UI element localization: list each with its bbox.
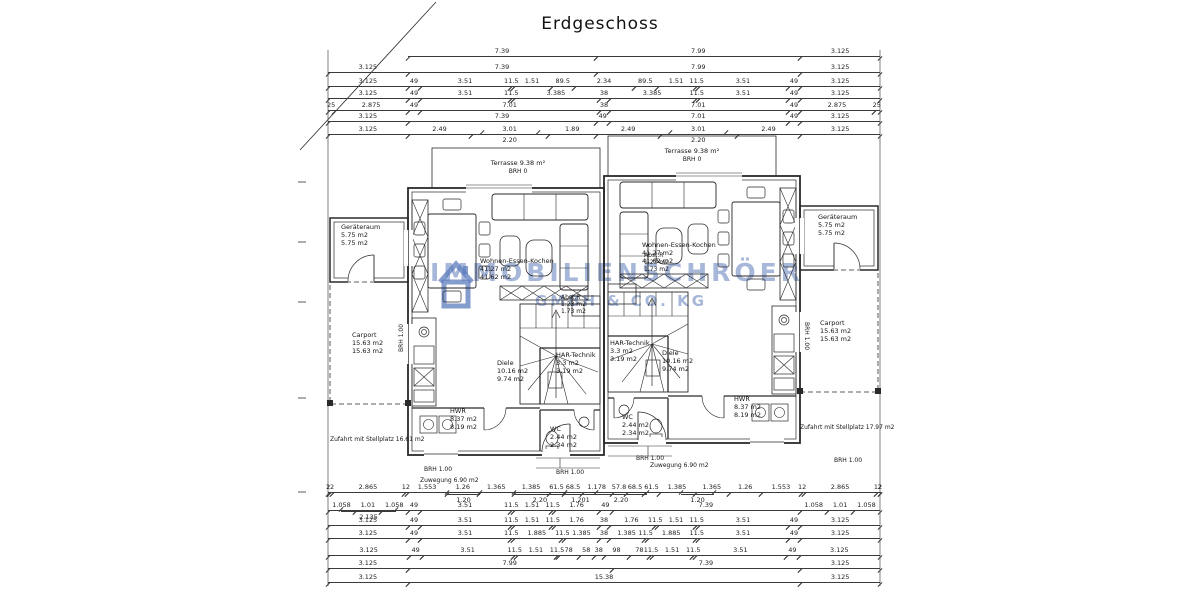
dim-label: 15.38 bbox=[595, 574, 614, 581]
kitchen-sink-inner bbox=[422, 330, 427, 335]
dim-segment: 38 bbox=[594, 547, 604, 556]
dim-segment: 1.01 bbox=[827, 502, 853, 511]
dimension-row: 1.0581.011.058493.5111.51.5111.51.76497.… bbox=[328, 502, 880, 511]
dim-segment: 49 bbox=[788, 517, 801, 526]
dim-label: 1.385 bbox=[572, 530, 591, 537]
geraeteraum-door-gap bbox=[348, 277, 374, 285]
room-label-wohnen-left: Wohnen-Essen-Kochen 41.27 m2 41.62 m2 bbox=[480, 258, 554, 281]
room-label-carport-left: Carport 15.63 m2 15.63 m2 bbox=[352, 332, 383, 355]
dim-segment: 1.885 bbox=[647, 530, 695, 539]
dim-segment: 3.125 bbox=[800, 90, 880, 99]
dim-segment: 49 bbox=[408, 90, 421, 99]
dim-segment: 1.76 bbox=[554, 517, 599, 526]
dim-segment: 49 bbox=[409, 547, 422, 556]
dim-label: 1.385 bbox=[668, 484, 687, 491]
dim-spacer bbox=[726, 134, 880, 143]
dim-segment: 3.125 bbox=[328, 90, 408, 99]
dim-segment: 1.365 bbox=[695, 484, 730, 493]
dim-label: 3.51 bbox=[460, 547, 474, 554]
brh-label-rotated-left: BRH 1.00 bbox=[398, 324, 405, 352]
chair bbox=[479, 244, 490, 257]
kitchen-hob bbox=[414, 346, 434, 364]
room-label-wc-left: WC 2.44 m2 2.34 m2 bbox=[550, 426, 577, 449]
dim-label: 3.125 bbox=[831, 530, 850, 537]
dim-segment: 7.01 bbox=[609, 113, 788, 122]
dim-segment: 7.01 bbox=[609, 102, 788, 111]
dim-label: 1.76 bbox=[569, 517, 583, 524]
dim-label: 3.51 bbox=[736, 530, 750, 537]
dim-segment: 1.553 bbox=[407, 484, 446, 493]
dim-segment: 1.01 bbox=[355, 502, 381, 511]
dim-segment: 1.058 bbox=[853, 502, 880, 511]
dim-segment: 3.125 bbox=[328, 530, 408, 539]
dim-label: 3.125 bbox=[831, 48, 850, 55]
sofa bbox=[492, 194, 588, 220]
dim-segment: 49 bbox=[788, 102, 801, 111]
dim-segment: 1.058 bbox=[800, 502, 827, 511]
dimension-row: 3.1257.397.993.125 bbox=[328, 64, 880, 73]
dim-label: 49 bbox=[410, 78, 418, 85]
dim-label: 49 bbox=[598, 113, 606, 120]
carport-post bbox=[327, 400, 333, 406]
room-label-diele-left: Diele 10.16 m2 9.74 m2 bbox=[497, 360, 528, 383]
room-label-geraeteraum-right: Geräteraum 5.75 m2 5.75 m2 bbox=[818, 214, 857, 237]
dim-segment: 2.34 bbox=[574, 78, 634, 87]
dim-label: 1.058 bbox=[385, 502, 404, 509]
dim-label: 7.39 bbox=[699, 560, 713, 567]
dim-label: 3.125 bbox=[359, 90, 378, 97]
entrance-door-gap bbox=[542, 449, 570, 458]
dim-label: 3.125 bbox=[359, 78, 378, 85]
dim-label: 61.5 bbox=[644, 484, 658, 491]
dim-segment: 38 bbox=[599, 90, 609, 99]
dim-segment: 3.385 bbox=[513, 90, 599, 99]
dim-segment: 3.125 bbox=[800, 530, 880, 539]
dim-segment: 2.875 bbox=[334, 102, 407, 111]
dim-label: 7.01 bbox=[691, 113, 705, 120]
dim-segment: 78 bbox=[558, 547, 578, 556]
dim-label: 2.49 bbox=[761, 126, 775, 133]
dim-segment: 1.76 bbox=[554, 502, 599, 511]
dim-label: 49 bbox=[790, 102, 798, 109]
dim-label: 1.89 bbox=[565, 126, 579, 133]
room-label-abstr-left: Abst.R 1.23 m2 1.73 m2 bbox=[561, 294, 586, 316]
dim-label: 1.553 bbox=[418, 484, 437, 491]
dim-label: 1.365 bbox=[703, 484, 722, 491]
dim-segment: 49 bbox=[786, 547, 799, 556]
room-label-geraeteraum-left: Geräteraum 5.75 m2 5.75 m2 bbox=[341, 224, 380, 247]
dim-label: 68.5 bbox=[566, 484, 580, 491]
dim-label: 1.51 bbox=[669, 517, 683, 524]
dim-label: 3.125 bbox=[359, 64, 378, 71]
room-label-carport-right: Carport 15.63 m2 15.63 m2 bbox=[820, 320, 851, 343]
dim-segment: 2.875 bbox=[800, 102, 873, 111]
zufahrt-label-left: Zufahrt mit Stellplatz 16.61 m2 bbox=[330, 436, 425, 443]
terrace-door-gap bbox=[466, 184, 532, 193]
dim-segment: 89.5 bbox=[634, 78, 657, 87]
dim-segment: 3.125 bbox=[800, 560, 880, 569]
dim-label: 49 bbox=[410, 530, 418, 537]
dim-label: 49 bbox=[410, 90, 418, 97]
dim-label: 3.51 bbox=[736, 517, 750, 524]
dim-label: 3.51 bbox=[458, 530, 472, 537]
room-label-wc-right: WC 2.44 m2 2.34 m2 bbox=[622, 414, 649, 437]
dim-label: 1.553 bbox=[772, 484, 791, 491]
dim-label: 1.01 bbox=[833, 502, 847, 509]
dim-label: 3.125 bbox=[831, 560, 850, 567]
dim-segment: 3.125 bbox=[328, 560, 408, 569]
dim-segment: 7.99 bbox=[596, 64, 800, 73]
dim-label: 78 bbox=[635, 547, 643, 554]
dim-label: 1.885 bbox=[662, 530, 681, 537]
dim-label: 3.51 bbox=[458, 517, 472, 524]
dim-segment: 3.51 bbox=[698, 530, 788, 539]
dim-segment: 3.51 bbox=[422, 547, 513, 556]
dim-segment: 38 bbox=[599, 517, 609, 526]
dim-label: 38 bbox=[600, 530, 608, 537]
dim-segment: 1.51 bbox=[513, 78, 552, 87]
dim-segment: 49 bbox=[408, 502, 421, 511]
dim-label: 49 bbox=[790, 113, 798, 120]
dim-label: 1.76 bbox=[569, 502, 583, 509]
dim-label: 2.49 bbox=[621, 126, 635, 133]
dim-segment: 38 bbox=[599, 530, 609, 539]
dim-label: 1.385 bbox=[617, 530, 636, 537]
dim-label: 3.125 bbox=[359, 547, 378, 554]
dim-label: 7.01 bbox=[691, 102, 705, 109]
dim-label: 3.125 bbox=[359, 574, 378, 581]
dim-segment: 57.8 bbox=[612, 484, 627, 493]
dim-segment: 25 bbox=[874, 102, 880, 111]
chair bbox=[443, 199, 461, 210]
dining-table bbox=[428, 214, 476, 288]
dimension-row: 3.12515.383.125 bbox=[328, 574, 880, 583]
dim-segment: 2.20 bbox=[482, 134, 538, 143]
dim-segment: 3.51 bbox=[420, 530, 510, 539]
washer bbox=[420, 416, 437, 433]
room-label-terrasse-left: Terrasse 9.38 m² BRH 0 bbox=[450, 160, 586, 175]
washer-drum bbox=[424, 420, 434, 430]
dim-segment: 49 bbox=[408, 78, 421, 87]
dim-label: 38 bbox=[600, 102, 608, 109]
dim-segment: 3.125 bbox=[328, 574, 408, 583]
dim-label: 1.26 bbox=[456, 484, 470, 491]
dim-label: 89.5 bbox=[638, 78, 652, 85]
dim-segment: 49 bbox=[788, 90, 801, 99]
room-label-hwr-left: HWR 8.37 m2 8.19 m2 bbox=[450, 408, 477, 431]
inner-wall-line bbox=[412, 192, 600, 451]
sofa-corner bbox=[560, 224, 588, 290]
dim-segment: 3.125 bbox=[800, 113, 880, 122]
dim-label: 7.99 bbox=[502, 560, 516, 567]
dim-segment: 1.385 bbox=[514, 484, 549, 493]
dim-label: 2.49 bbox=[432, 126, 446, 133]
dim-label: 25 bbox=[873, 102, 881, 109]
dim-spacer bbox=[328, 134, 482, 143]
dim-label: 3.125 bbox=[831, 113, 850, 120]
dim-segment: 3.125 bbox=[800, 64, 880, 73]
dim-label: 3.125 bbox=[359, 530, 378, 537]
dimension-row: 2.202.20 bbox=[328, 134, 880, 143]
dim-label: 7.39 bbox=[699, 502, 713, 509]
dim-segment: 3.385 bbox=[609, 90, 695, 99]
kitchen-oven-hatch bbox=[414, 368, 434, 386]
dim-segment: 98 bbox=[604, 547, 629, 556]
dim-segment: 1.385 bbox=[564, 530, 599, 539]
dim-label: 1.26 bbox=[738, 484, 752, 491]
dimension-row: 3.125493.5111.51.5111.51.76381.7611.51.5… bbox=[328, 517, 880, 526]
dim-segment: 3.125 bbox=[800, 48, 880, 57]
dim-label: 57.8 bbox=[612, 484, 626, 491]
dim-label: 58 bbox=[582, 547, 590, 554]
dim-label: 1.51 bbox=[529, 547, 543, 554]
dim-segment: 49 bbox=[788, 113, 801, 122]
brh-label-rotated-right: BRH 1.00 bbox=[803, 322, 810, 350]
dim-segment: 7.39 bbox=[408, 113, 597, 122]
dim-segment: 38 bbox=[599, 102, 609, 111]
dim-label: 3.51 bbox=[736, 90, 750, 97]
dim-segment: 49 bbox=[408, 102, 421, 111]
dim-label: 78 bbox=[564, 547, 572, 554]
dim-segment: 7.39 bbox=[612, 502, 801, 511]
chair bbox=[414, 266, 425, 279]
dim-segment: 68.5 bbox=[564, 484, 581, 493]
dim-segment: 1.385 bbox=[659, 484, 694, 493]
dim-label: 1.385 bbox=[522, 484, 541, 491]
dim-label: 3.51 bbox=[733, 547, 747, 554]
dim-label: 49 bbox=[790, 530, 798, 537]
dim-label: 7.39 bbox=[495, 48, 509, 55]
dim-label: 3.01 bbox=[502, 126, 516, 133]
dimension-row: 3.125493.5111.53.385383.38511.53.51493.1… bbox=[328, 90, 880, 99]
dim-label: 3.51 bbox=[736, 78, 750, 85]
dim-segment: 3.51 bbox=[698, 78, 788, 87]
floorplan-page: Erdgeschoss IMMOBILIEN SCHRÖER GMBH & CO… bbox=[0, 0, 1200, 600]
brh-label: BRH 1.00 bbox=[834, 457, 862, 464]
dim-label: 2.20 bbox=[691, 137, 705, 144]
left-margin-ticks bbox=[298, 182, 306, 492]
entrance-steps bbox=[536, 458, 600, 468]
room-label-abstr-right: Abst.R 1.23 m2 1.73 m2 bbox=[644, 252, 669, 274]
dim-segment: 49 bbox=[408, 530, 421, 539]
dim-label: 1.51 bbox=[525, 502, 539, 509]
dim-label: 1.058 bbox=[804, 502, 823, 509]
dim-label: 3.125 bbox=[831, 90, 850, 97]
dim-label: 38 bbox=[600, 90, 608, 97]
window-gap bbox=[424, 449, 458, 458]
dimension-row: 3.1257.997.393.125 bbox=[328, 560, 880, 569]
dim-segment: 15.38 bbox=[408, 574, 801, 583]
dim-label: 49 bbox=[601, 502, 609, 509]
dimension-row: 3.125493.5111.51.88511.51.385381.38511.5… bbox=[328, 530, 880, 539]
dim-label: 49 bbox=[790, 78, 798, 85]
dimension-row: 7.397.993.125 bbox=[328, 48, 880, 57]
wc-sink bbox=[579, 417, 589, 427]
kitchen-counter bbox=[412, 318, 436, 406]
dim-label: 3.125 bbox=[831, 517, 850, 524]
dim-segment: 7.01 bbox=[420, 102, 599, 111]
dim-segment: 49 bbox=[596, 113, 609, 122]
dim-label: 3.385 bbox=[643, 90, 662, 97]
dim-segment: 3.125 bbox=[328, 517, 408, 526]
dim-segment: 1.26 bbox=[729, 484, 761, 493]
dim-segment: 49 bbox=[599, 502, 612, 511]
dim-segment: 49 bbox=[788, 78, 801, 87]
dim-label: 1.51 bbox=[525, 78, 539, 85]
room-label-terrasse-right: Terrasse 9.38 m² BRH 0 bbox=[624, 148, 760, 163]
brh-label: BRH 1.00 bbox=[424, 466, 452, 473]
dim-segment: 2.20 bbox=[670, 134, 726, 143]
dim-segment: 3.125 bbox=[328, 64, 408, 73]
dim-label: 3.125 bbox=[830, 547, 849, 554]
dim-label: 2.20 bbox=[502, 137, 516, 144]
brh-label: BRH 1.00 bbox=[556, 469, 584, 476]
dim-label: 1.058 bbox=[857, 502, 876, 509]
dim-segment: 7.39 bbox=[408, 64, 597, 73]
dim-label: 1.51 bbox=[665, 547, 679, 554]
dim-segment: 3.51 bbox=[695, 547, 786, 556]
dim-label: 1.01 bbox=[361, 502, 375, 509]
dim-label: 1.51 bbox=[525, 517, 539, 524]
dim-spacer bbox=[538, 134, 670, 143]
dimension-row: 3.125493.5111.51.5111.5785838987811.51.5… bbox=[328, 547, 880, 556]
carport-post bbox=[405, 400, 411, 406]
room-label-har-right: HAR-Technik 3.3 m2 3.19 m2 bbox=[610, 340, 650, 363]
dim-label: 38 bbox=[600, 517, 608, 524]
dim-segment: 3.125 bbox=[800, 574, 880, 583]
kitchen-sink bbox=[419, 327, 429, 337]
dim-segment: 58 bbox=[579, 547, 594, 556]
dim-label: 49 bbox=[410, 502, 418, 509]
dim-label: 3.125 bbox=[359, 113, 378, 120]
dim-segment: 1.553 bbox=[761, 484, 800, 493]
dim-segment: 49 bbox=[408, 517, 421, 526]
dim-segment: 2.865 bbox=[804, 484, 877, 493]
dim-label: 3.125 bbox=[831, 574, 850, 581]
dim-label: 68.5 bbox=[628, 484, 642, 491]
dim-label: 61.5 bbox=[549, 484, 563, 491]
room-label-hwr-right: HWR 8.37 m2 8.19 m2 bbox=[734, 396, 761, 419]
dim-segment: 7.99 bbox=[596, 48, 800, 57]
dim-segment: 3.51 bbox=[420, 90, 510, 99]
brh-label: BRH 1.00 bbox=[636, 455, 664, 462]
dim-label: 3.51 bbox=[458, 90, 472, 97]
dim-label: 3.125 bbox=[359, 517, 378, 524]
dimension-row: 2122.865121.5531.261.3651.38561.568.51.1… bbox=[328, 484, 880, 493]
dim-label: 89.5 bbox=[555, 78, 569, 85]
dim-label: 98 bbox=[612, 547, 620, 554]
dim-label: 2 bbox=[878, 484, 882, 491]
dim-label: 7.39 bbox=[495, 64, 509, 71]
dim-label: 3.385 bbox=[547, 90, 566, 97]
dim-label: 3.51 bbox=[458, 78, 472, 85]
dim-segment: 3.125 bbox=[328, 547, 409, 556]
dim-segment: 3.125 bbox=[800, 517, 880, 526]
dim-segment: 1.26 bbox=[447, 484, 479, 493]
dim-label: 3.51 bbox=[458, 502, 472, 509]
dim-label: 7.39 bbox=[495, 113, 509, 120]
dim-label: 49 bbox=[790, 90, 798, 97]
chair bbox=[443, 291, 461, 302]
chair bbox=[479, 222, 490, 235]
dim-segment: 2 bbox=[880, 484, 881, 493]
dim-label: 1.76 bbox=[624, 517, 638, 524]
dim-segment: 3.51 bbox=[698, 517, 788, 526]
dim-label: 7.01 bbox=[502, 102, 516, 109]
room-label-diele-right: Diele 10.16 m2 9.74 m2 bbox=[662, 350, 693, 373]
dimension-row: 3.125493.5111.51.5189.52.3489.51.5111.53… bbox=[328, 78, 880, 87]
dim-label: 1.885 bbox=[528, 530, 547, 537]
dim-segment: 7.99 bbox=[408, 560, 612, 569]
dim-label: 38 bbox=[595, 547, 603, 554]
dim-label: 2.865 bbox=[831, 484, 850, 491]
dim-label: 49 bbox=[788, 547, 796, 554]
dim-segment: 3.125 bbox=[799, 547, 880, 556]
dim-label: 1.365 bbox=[487, 484, 506, 491]
dim-segment: 3.125 bbox=[328, 78, 408, 87]
dim-label: 49 bbox=[790, 517, 798, 524]
dim-segment: 3.125 bbox=[328, 113, 408, 122]
zufahrt-label-right: Zufahrt mit Stellplatz 17.97 m2 bbox=[800, 424, 895, 431]
hwr-door-arc bbox=[484, 408, 506, 430]
dim-label: 2.875 bbox=[362, 102, 381, 109]
dim-segment: 2.865 bbox=[332, 484, 405, 493]
dim-segment: 68.5 bbox=[626, 484, 643, 493]
dimension-row: 3.1257.39497.01493.125 bbox=[328, 113, 880, 122]
room-label-har-left: HAR-Technik 3.3 m2 3.19 m2 bbox=[556, 352, 596, 375]
dim-spacer bbox=[328, 48, 408, 57]
dim-label: 49 bbox=[411, 547, 419, 554]
dim-label: 7.99 bbox=[691, 48, 705, 55]
dim-label: 1.51 bbox=[669, 78, 683, 85]
dim-label: 3.125 bbox=[831, 78, 850, 85]
dim-label: 2.865 bbox=[359, 484, 378, 491]
dim-segment: 3.51 bbox=[420, 502, 510, 511]
dim-label: 3.125 bbox=[359, 126, 378, 133]
dim-segment: 7.39 bbox=[408, 48, 597, 57]
dim-segment: 3.51 bbox=[698, 90, 788, 99]
dim-segment: 3.51 bbox=[420, 78, 510, 87]
dim-label: 3.125 bbox=[831, 64, 850, 71]
zuwegung-label-right: Zuwegung 6.90 m2 bbox=[650, 462, 709, 469]
dim-segment: 7.39 bbox=[612, 560, 801, 569]
dim-label: 3.125 bbox=[831, 126, 850, 133]
dim-label: 2.34 bbox=[597, 78, 611, 85]
dim-segment: 89.5 bbox=[551, 78, 574, 87]
dimension-row: 252.875497.01387.01492.87525 bbox=[328, 102, 880, 111]
dim-segment: 3.51 bbox=[420, 517, 510, 526]
dim-label: 7.99 bbox=[691, 64, 705, 71]
dim-segment: 3.125 bbox=[800, 78, 880, 87]
zuwegung-label-left: Zuwegung 6.90 m2 bbox=[420, 477, 479, 484]
dim-label: 2.875 bbox=[828, 102, 847, 109]
dim-segment: 1.365 bbox=[479, 484, 514, 493]
dim-segment: 1.885 bbox=[513, 530, 561, 539]
dim-segment: 49 bbox=[788, 530, 801, 539]
dim-label: 49 bbox=[410, 102, 418, 109]
dim-label: 3.01 bbox=[691, 126, 705, 133]
dim-label: 49 bbox=[410, 517, 418, 524]
dim-label: 3.125 bbox=[359, 560, 378, 567]
kitchen-cabinet bbox=[414, 390, 434, 402]
dim-segment: 61.5 bbox=[549, 484, 565, 493]
